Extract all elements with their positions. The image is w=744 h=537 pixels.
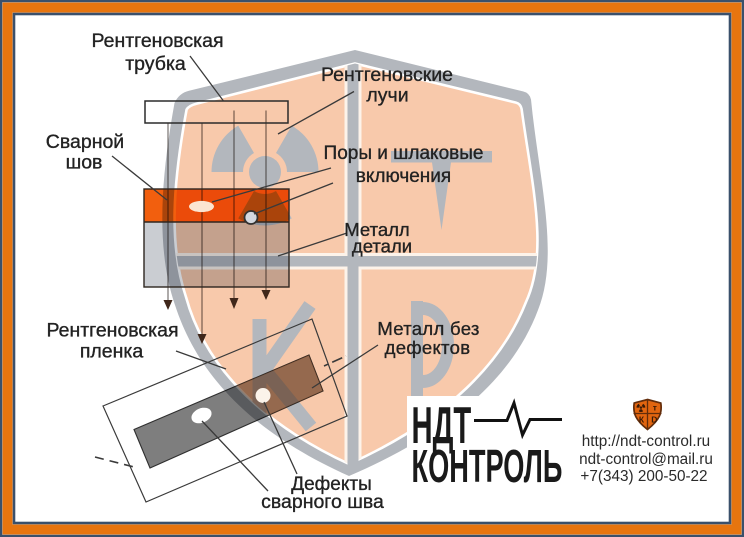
- svg-text:сварного шва: сварного шва: [261, 491, 384, 513]
- svg-text:ndt-control@mail.ru: ndt-control@mail.ru: [579, 451, 713, 468]
- svg-text:шов: шов: [66, 152, 103, 174]
- svg-text:т: т: [653, 403, 657, 413]
- svg-text:Поры и шлаковые: Поры и шлаковые: [324, 143, 484, 164]
- svg-text:+7(343) 200-50-22: +7(343) 200-50-22: [580, 468, 707, 485]
- svg-text:Рентгеновская: Рентгеновская: [91, 30, 223, 52]
- svg-text:http://ndt-control.ru: http://ndt-control.ru: [582, 433, 710, 450]
- svg-text:лучи: лучи: [366, 85, 408, 107]
- svg-text:КОНТРОЛЬ: КОНТРОЛЬ: [412, 442, 563, 493]
- svg-text:детали: детали: [352, 236, 412, 257]
- svg-text:пленка: пленка: [80, 341, 144, 363]
- svg-text:трубка: трубка: [125, 53, 186, 75]
- svg-text:Металл без: Металл без: [377, 318, 479, 339]
- svg-text:дефектов: дефектов: [385, 337, 471, 358]
- svg-text:К: К: [639, 415, 645, 425]
- svg-text:включения: включения: [356, 166, 451, 187]
- svg-text:Рентгеновские: Рентгеновские: [321, 64, 453, 86]
- svg-text:Рентгеновская: Рентгеновская: [46, 320, 178, 342]
- svg-text:Сварной: Сварной: [46, 131, 124, 153]
- svg-text:D: D: [651, 415, 657, 425]
